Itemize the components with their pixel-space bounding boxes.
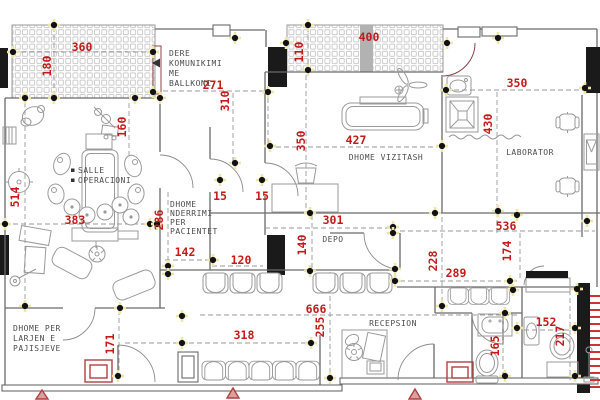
- room-label-nderrimi-line2: NDERRIMI: [170, 209, 213, 218]
- dim-174: 174: [500, 241, 514, 262]
- dim-255: 255: [313, 317, 327, 338]
- dim-383: 383: [65, 213, 86, 227]
- dim-271: 271: [203, 78, 224, 92]
- room-label-vizitash: DHOME VIZITASH: [349, 153, 423, 162]
- annotation-dere-line2: KOMUNIKIMI: [169, 59, 222, 68]
- waiting-chairs: [202, 273, 510, 380]
- dim-360: 360: [72, 40, 93, 54]
- dim-120: 120: [231, 253, 252, 267]
- room-label-depo: DEPO: [322, 235, 343, 244]
- dim-430: 430: [481, 114, 495, 135]
- room-label-nderrimi-line4: PACIENTET: [170, 227, 218, 236]
- dim-318: 318: [234, 328, 255, 342]
- room-label-laborator: LABORATOR: [506, 148, 554, 157]
- dim-666: 666: [306, 302, 327, 316]
- room-label-salle-line2: OPERACIONI: [78, 176, 131, 185]
- dim-15-left: 15: [213, 189, 227, 203]
- dim-350-laborator: 350: [507, 76, 528, 90]
- room-label-nderrimi-line1: DHOME: [170, 200, 197, 209]
- dim-536: 536: [496, 219, 517, 233]
- dim-110: 110: [292, 42, 306, 63]
- dim-310: 310: [218, 91, 232, 112]
- dim-180: 180: [40, 56, 54, 77]
- dim-286: 286: [152, 210, 166, 231]
- room-label-larjen-line2: LARJEN E: [13, 334, 56, 343]
- dim-427: 427: [346, 133, 367, 147]
- dim-140: 140: [295, 235, 309, 256]
- dim-228: 228: [426, 251, 440, 272]
- dim-171: 171: [103, 334, 117, 355]
- dim-301: 301: [323, 213, 344, 227]
- stair-hatch: [590, 296, 600, 387]
- dim-400: 400: [359, 30, 380, 44]
- room-label-larjen-line1: DHOME PER: [13, 324, 61, 333]
- room-label-salle-line1: SALLE: [78, 166, 105, 175]
- dim-160: 160: [115, 117, 129, 138]
- dim-165: 165: [488, 336, 502, 357]
- dim-514: 514: [8, 187, 22, 208]
- annotation-dere-line1: DERE: [169, 49, 190, 58]
- counter-dark-top: [526, 271, 568, 278]
- laborator-furniture: [446, 76, 599, 197]
- room-label-larjen-line3: PAJISJEVE: [13, 344, 61, 353]
- room-label-recepsion: RECEPSION: [369, 319, 417, 328]
- room-label-nderrimi-line3: PER: [170, 218, 186, 227]
- dim-217: 217: [553, 326, 567, 347]
- dim-15-right: 15: [255, 189, 269, 203]
- operating-room-equipment: [3, 103, 157, 302]
- annotation-dere-line3: ME: [169, 69, 180, 78]
- dim-289: 289: [446, 266, 467, 280]
- dim-350-vizitash: 350: [294, 131, 308, 152]
- dim-142: 142: [175, 245, 196, 259]
- floor-plan-canvas: DERE KOMUNIKIMI ME BALLKONI SALLE OPERAC…: [0, 0, 600, 400]
